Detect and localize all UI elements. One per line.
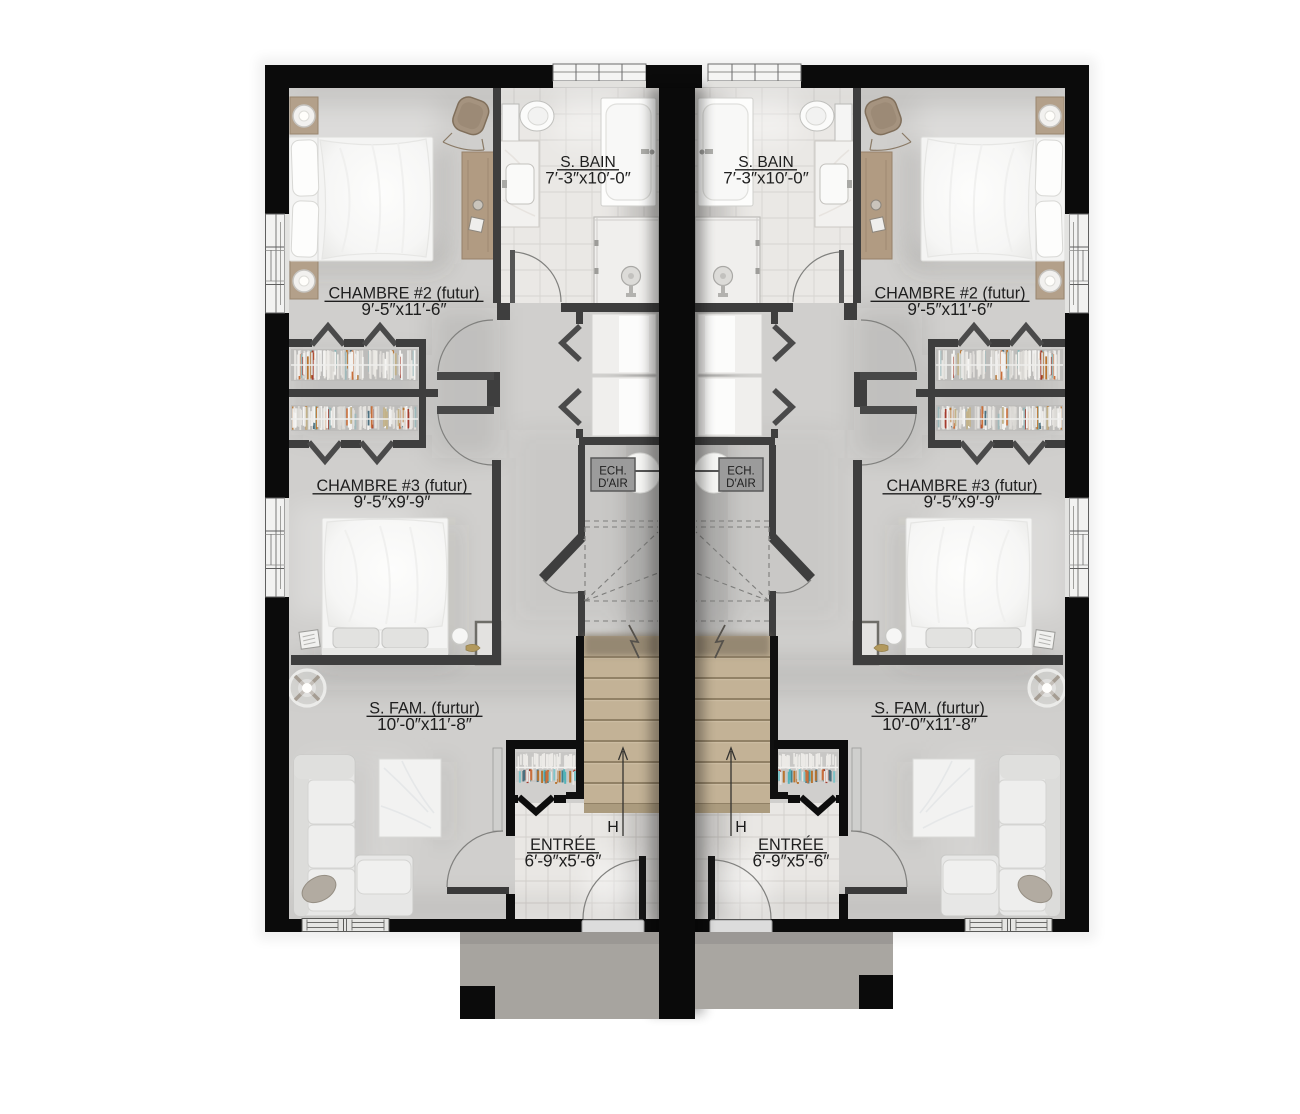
svg-text:H: H (607, 819, 619, 836)
svg-text:ECH.: ECH. (599, 466, 626, 478)
svg-text:ECH.: ECH. (727, 466, 754, 478)
svg-text:10′-0″x11′-8″: 10′-0″x11′-8″ (377, 714, 472, 734)
svg-text:9′-5″x9′-9″: 9′-5″x9′-9″ (924, 491, 1001, 511)
svg-text:9′-5″x9′-9″: 9′-5″x9′-9″ (354, 491, 431, 511)
svg-text:9′-5″x11′-6″: 9′-5″x11′-6″ (361, 299, 446, 319)
svg-text:10′-0″x11′-8″: 10′-0″x11′-8″ (882, 714, 977, 734)
svg-text:6′-9″x5′-6″: 6′-9″x5′-6″ (753, 850, 830, 870)
svg-text:D′AIR: D′AIR (726, 478, 756, 490)
svg-text:9′-5″x11′-6″: 9′-5″x11′-6″ (907, 299, 992, 319)
svg-text:7′-3″x10′-0″: 7′-3″x10′-0″ (545, 168, 631, 187)
svg-text:7′-3″x10′-0″: 7′-3″x10′-0″ (723, 168, 809, 187)
svg-text:H: H (735, 819, 747, 836)
svg-text:D′AIR: D′AIR (598, 478, 628, 490)
svg-text:6′-9″x5′-6″: 6′-9″x5′-6″ (525, 850, 602, 870)
